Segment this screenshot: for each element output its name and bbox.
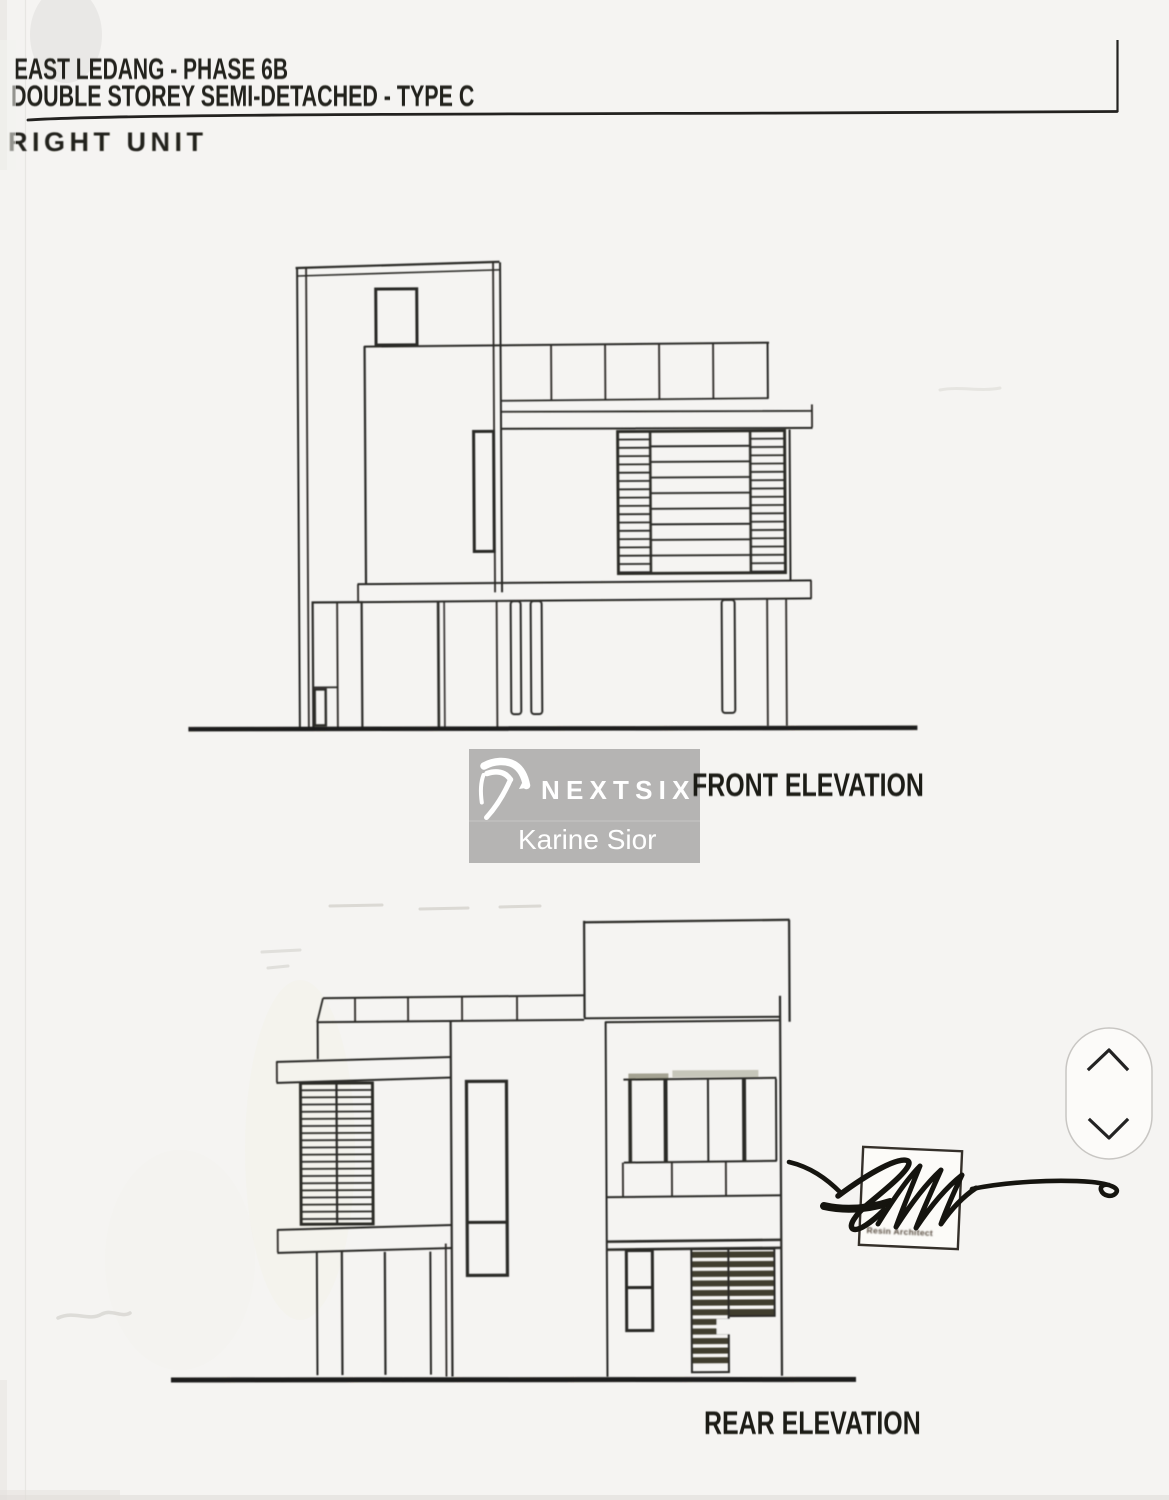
svg-text:REAR ELEVATION: REAR ELEVATION: [704, 1406, 921, 1442]
svg-text:DOUBLE STOREY SEMI-DETACHED -: DOUBLE STOREY SEMI-DETACHED - TYPE C: [11, 78, 474, 113]
svg-text:FRONT ELEVATION: FRONT ELEVATION: [692, 768, 924, 804]
svg-text:RIGHT UNIT: RIGHT UNIT: [8, 127, 208, 157]
svg-text:Karine Sior: Karine Sior: [518, 824, 657, 855]
svg-text:NEXTSIX: NEXTSIX: [541, 775, 696, 805]
